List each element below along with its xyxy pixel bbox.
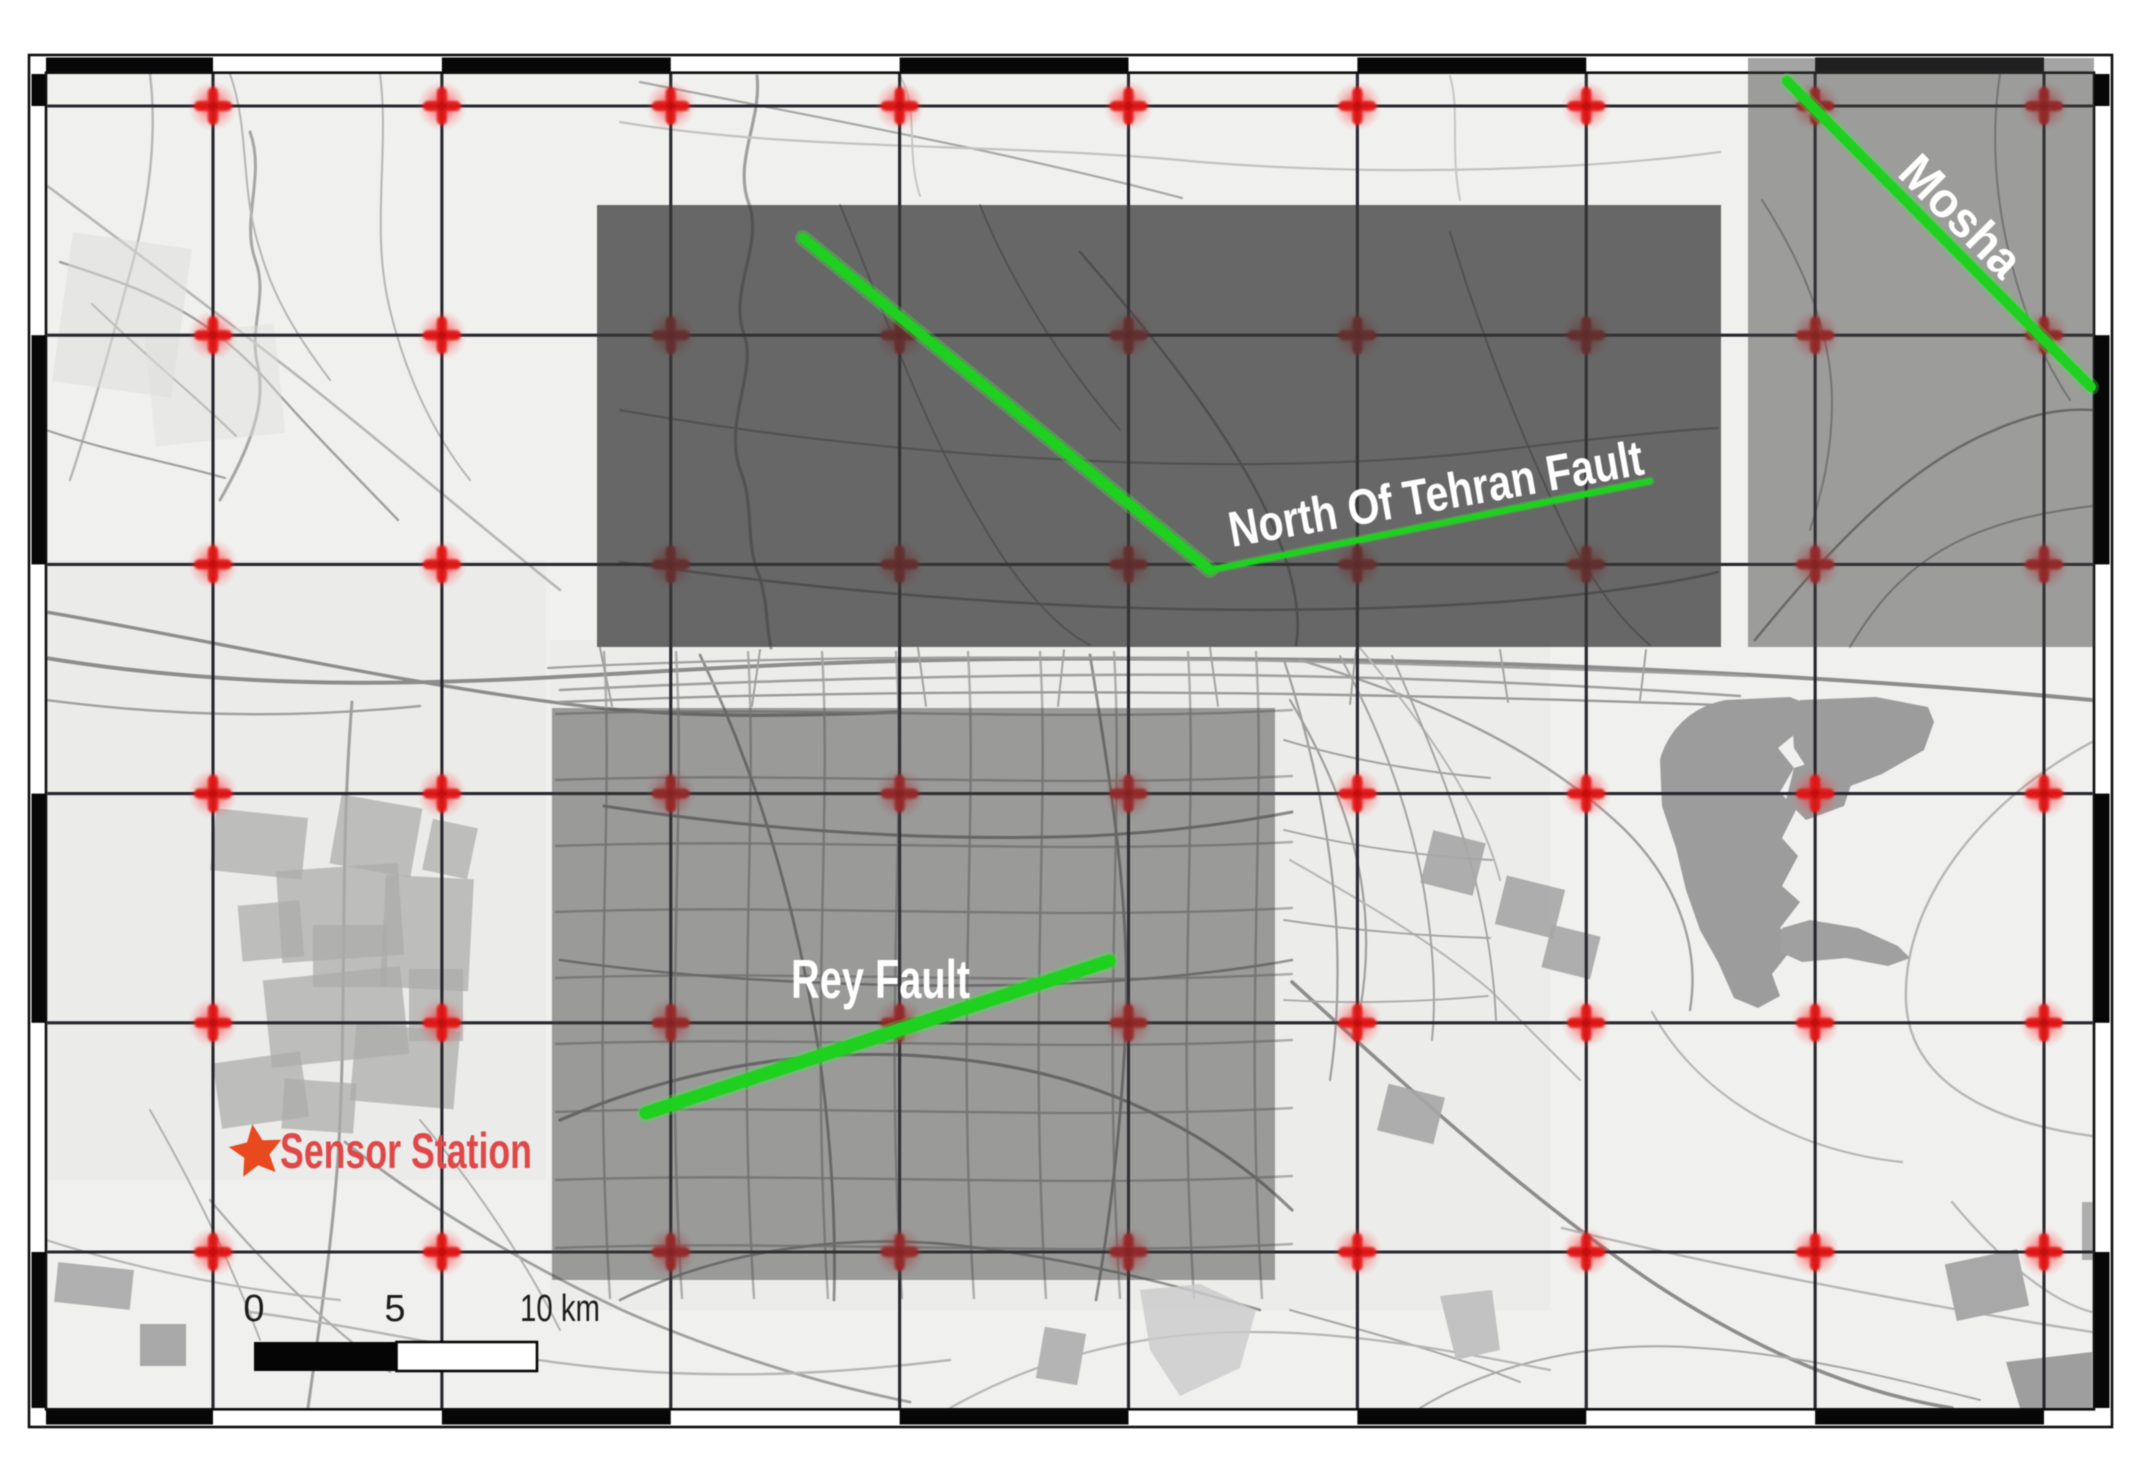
svg-text:Rey Fault: Rey Fault (791, 948, 970, 1010)
svg-text:10 km: 10 km (520, 1288, 600, 1330)
svg-text:0: 0 (243, 1288, 264, 1330)
svg-text:5: 5 (384, 1288, 405, 1330)
svg-text:Sensor Station: Sensor Station (280, 1123, 532, 1179)
